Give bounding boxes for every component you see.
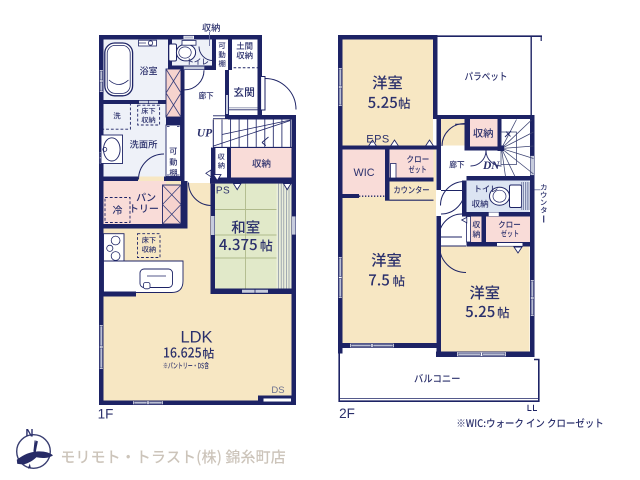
svg-text:1F: 1F (98, 407, 114, 422)
svg-text:UP: UP (197, 127, 213, 139)
svg-text:PS: PS (216, 186, 230, 197)
svg-text:DS: DS (271, 385, 284, 396)
svg-text:LDK: LDK (180, 328, 212, 346)
svg-text:N: N (26, 428, 34, 440)
svg-text:WIC: WIC (354, 167, 375, 179)
svg-text:DN: DN (482, 160, 500, 172)
svg-text:2F: 2F (339, 406, 355, 421)
svg-text:EPS: EPS (366, 134, 390, 146)
